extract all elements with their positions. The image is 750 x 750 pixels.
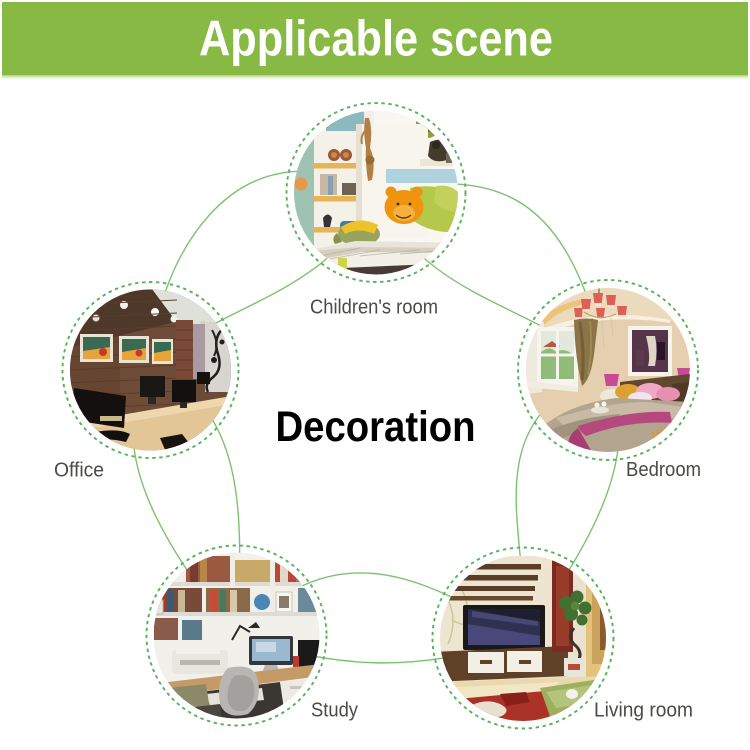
svg-text:Bedroom: Bedroom: [626, 459, 701, 481]
svg-text:Office: Office: [54, 460, 104, 482]
svg-text:Applicable scene: Applicable scene: [199, 10, 553, 67]
svg-text:Study: Study: [311, 700, 358, 722]
svg-text:Decoration: Decoration: [276, 404, 476, 451]
svg-text:Living room: Living room: [594, 700, 693, 722]
svg-text:Children's room: Children's room: [310, 297, 438, 319]
